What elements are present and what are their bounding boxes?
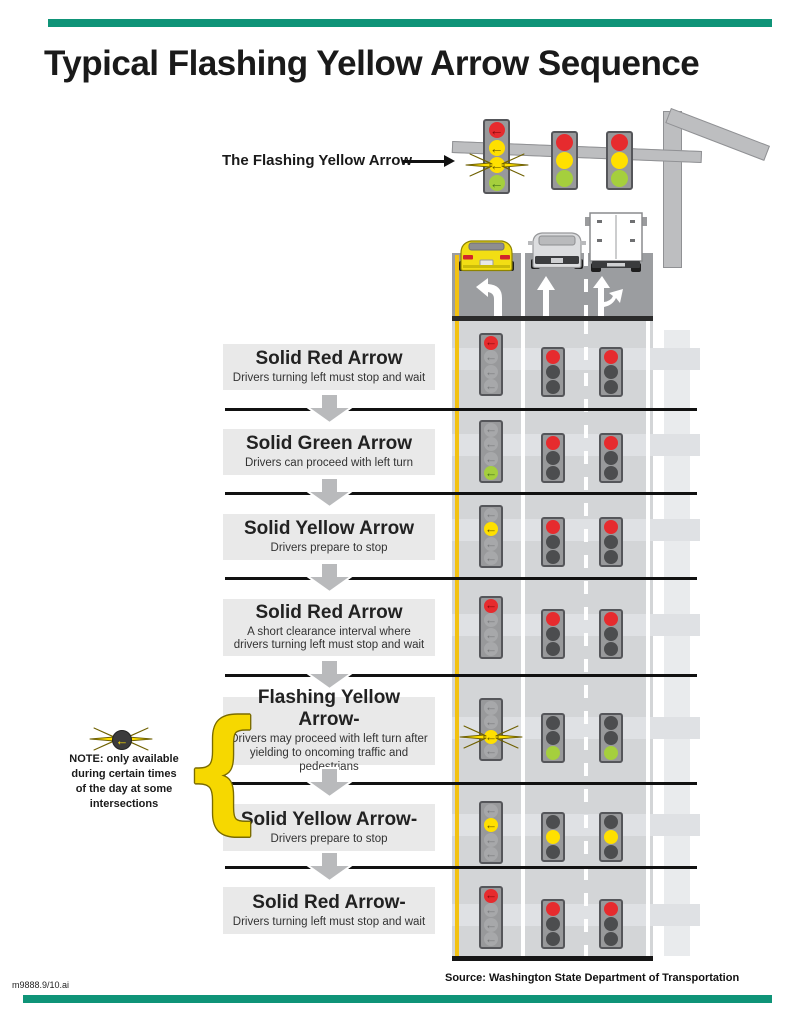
red-lamp bbox=[546, 902, 560, 916]
phase-divider bbox=[225, 492, 697, 495]
flashing-yellow-arrow-lamp-off bbox=[484, 918, 498, 932]
red-lamp bbox=[604, 902, 618, 916]
green-lamp-off bbox=[546, 550, 560, 564]
yellow-lamp-off bbox=[546, 451, 560, 465]
phase-label-solid-red-arrow-3: Solid Red Arrow- Drivers turning left mu… bbox=[223, 887, 435, 934]
flashing-yellow-arrow-lamp-off bbox=[484, 628, 498, 642]
red-lamp-off bbox=[604, 716, 618, 730]
flashing-yellow-arrow-icon: ← bbox=[112, 730, 132, 750]
left-turn-signal bbox=[479, 698, 503, 761]
phase-divider bbox=[225, 782, 697, 785]
lane-line-solid bbox=[646, 321, 650, 956]
red-arrow-lamp bbox=[489, 122, 505, 138]
next-phase-arrow-icon bbox=[306, 477, 353, 508]
signal-pole bbox=[663, 111, 682, 268]
left-turn-signal bbox=[479, 333, 503, 396]
red-arrow-lamp-off bbox=[484, 701, 498, 715]
next-phase-arrow-icon bbox=[306, 767, 353, 798]
yellow-lamp-off bbox=[546, 627, 560, 641]
green-arrow-lamp-off bbox=[484, 932, 498, 946]
yellow-lamp bbox=[604, 830, 618, 844]
through-signal bbox=[599, 713, 623, 763]
green-arrow-lamp-off bbox=[484, 642, 498, 656]
box-truck bbox=[585, 211, 647, 273]
flashing-yellow-arrow-lamp bbox=[484, 730, 498, 744]
through-signal bbox=[541, 713, 565, 763]
phase-desc: Drivers prepare to stop bbox=[229, 542, 429, 556]
red-lamp bbox=[604, 612, 618, 626]
left-turn-signal bbox=[479, 505, 503, 568]
phase-title: Solid Yellow Arrow bbox=[229, 518, 429, 540]
green-lamp bbox=[611, 170, 628, 187]
red-lamp bbox=[546, 520, 560, 534]
note-text: NOTE: only available during certain time… bbox=[68, 752, 180, 811]
yellow-arrow-lamp-off bbox=[484, 903, 498, 917]
red-arrow-lamp bbox=[484, 336, 498, 350]
yellow-lamp-off bbox=[604, 365, 618, 379]
yellow-arrow-lamp-off bbox=[484, 437, 498, 451]
next-phase-arrow-icon bbox=[306, 851, 353, 882]
left-turn-signal bbox=[479, 801, 503, 864]
yellow-arrow-lamp bbox=[484, 522, 498, 536]
phase-label-solid-green-arrow: Solid Green Arrow Drivers can proceed wi… bbox=[223, 429, 435, 475]
red-arrow-lamp bbox=[484, 889, 498, 903]
red-lamp bbox=[546, 350, 560, 364]
green-lamp-off bbox=[604, 642, 618, 656]
phase-label-solid-yellow-arrow: Solid Yellow Arrow Drivers prepare to st… bbox=[223, 514, 435, 560]
top-accent-bar bbox=[48, 19, 772, 27]
yellow-arrow-lamp-off bbox=[484, 715, 498, 729]
green-lamp-off bbox=[604, 550, 618, 564]
yellow-lamp-off bbox=[604, 535, 618, 549]
straight-arrow-marking bbox=[536, 276, 556, 318]
red-lamp bbox=[611, 134, 628, 151]
green-lamp bbox=[556, 170, 573, 187]
flashing-yellow-arrow-lamp bbox=[489, 157, 505, 173]
yellow-lamp-off bbox=[604, 731, 618, 745]
left-turn-signal bbox=[479, 420, 503, 483]
red-lamp-off bbox=[604, 815, 618, 829]
phase-title: Solid Red Arrow bbox=[229, 348, 429, 370]
through-signal bbox=[599, 517, 623, 567]
red-arrow-lamp-off bbox=[484, 508, 498, 522]
green-arrow-lamp-off bbox=[484, 379, 498, 393]
green-lamp-off bbox=[546, 845, 560, 859]
yellow-lamp-off bbox=[546, 917, 560, 931]
green-lamp-off bbox=[546, 466, 560, 480]
phase-desc: Drivers can proceed with left turn bbox=[229, 457, 429, 471]
green-lamp-off bbox=[604, 845, 618, 859]
phase-divider bbox=[225, 577, 697, 580]
green-lamp-off bbox=[546, 642, 560, 656]
next-phase-arrow-icon bbox=[306, 393, 353, 424]
red-arrow-lamp-off bbox=[484, 423, 498, 437]
green-arrow-lamp bbox=[484, 466, 498, 480]
through-signal bbox=[541, 899, 565, 949]
next-phase-arrow-icon bbox=[306, 659, 353, 690]
through-signal bbox=[541, 517, 565, 567]
left-turn-signal bbox=[479, 886, 503, 949]
red-lamp-off bbox=[546, 815, 560, 829]
phase-label-solid-red-arrow: Solid Red Arrow Drivers turning left mus… bbox=[223, 344, 435, 390]
red-lamp bbox=[546, 436, 560, 450]
lane-line-solid bbox=[521, 253, 525, 316]
red-lamp bbox=[546, 612, 560, 626]
green-lamp-off bbox=[604, 932, 618, 946]
file-id: m9888.9/10.ai bbox=[12, 980, 69, 990]
page-title: Typical Flashing Yellow Arrow Sequence bbox=[44, 44, 764, 84]
green-lamp-off bbox=[546, 932, 560, 946]
red-lamp bbox=[604, 350, 618, 364]
yellow-lamp bbox=[556, 152, 573, 169]
yellow-arrow-lamp bbox=[489, 140, 505, 156]
through-signal bbox=[541, 433, 565, 483]
lane-line-dashed bbox=[584, 321, 588, 956]
legend-three-section-signal bbox=[606, 131, 633, 190]
green-lamp bbox=[546, 746, 560, 760]
road-end-bar bbox=[452, 956, 653, 961]
yellow-arrow-lamp-off bbox=[484, 613, 498, 627]
through-signal bbox=[541, 609, 565, 659]
phase-divider bbox=[225, 408, 697, 411]
through-signal bbox=[599, 899, 623, 949]
red-lamp bbox=[604, 436, 618, 450]
left-turn-arrow-marking bbox=[474, 276, 510, 318]
phase-desc: Drivers turning left must stop and wait bbox=[229, 372, 429, 386]
phase-desc: A short clearance interval where drivers… bbox=[229, 626, 429, 654]
yellow-arrow-lamp-off bbox=[484, 350, 498, 364]
red-arrow-lamp bbox=[484, 599, 498, 613]
green-arrow-lamp-off bbox=[484, 744, 498, 758]
phase-title: Solid Green Arrow bbox=[229, 433, 429, 455]
through-signal bbox=[599, 347, 623, 397]
through-signal bbox=[541, 812, 565, 862]
yellow-lamp-off bbox=[546, 365, 560, 379]
left-turn-signal bbox=[479, 596, 503, 659]
green-arrow-lamp bbox=[489, 175, 505, 191]
phase-title: Solid Red Arrow- bbox=[229, 892, 429, 914]
pointer-arrow-icon bbox=[444, 155, 455, 167]
phase-label-solid-red-arrow-clearance: Solid Red Arrow A short clearance interv… bbox=[223, 599, 435, 656]
yellow-edge-line bbox=[455, 255, 459, 956]
yellow-car bbox=[454, 236, 519, 272]
through-signal bbox=[599, 609, 623, 659]
yellow-lamp-off bbox=[604, 451, 618, 465]
yellow-lamp-off bbox=[604, 627, 618, 641]
flashing-yellow-arrow-lamp-off bbox=[484, 365, 498, 379]
red-lamp-off bbox=[546, 716, 560, 730]
green-arrow-lamp-off bbox=[484, 551, 498, 565]
legend-four-section-signal bbox=[483, 119, 510, 194]
stop-bar bbox=[452, 316, 653, 321]
cross-street-strip bbox=[664, 330, 690, 956]
legend-three-section-signal bbox=[551, 131, 578, 190]
through-signal bbox=[599, 812, 623, 862]
green-lamp-off bbox=[546, 380, 560, 394]
red-lamp bbox=[556, 134, 573, 151]
yellow-lamp-off bbox=[546, 535, 560, 549]
bottom-accent-bar bbox=[23, 995, 772, 1003]
note-brace: { bbox=[180, 682, 221, 858]
phase-desc: Drivers turning left must stop and wait bbox=[229, 916, 429, 930]
yellow-lamp-off bbox=[604, 917, 618, 931]
green-arrow-lamp-off bbox=[484, 847, 498, 861]
yellow-lamp bbox=[611, 152, 628, 169]
through-signal bbox=[541, 347, 565, 397]
phase-divider bbox=[225, 674, 697, 677]
flashing-yellow-arrow-lamp-off bbox=[484, 452, 498, 466]
flashing-yellow-arrow-lamp-off bbox=[484, 537, 498, 551]
phase-divider bbox=[225, 866, 697, 869]
through-signal bbox=[599, 433, 623, 483]
yellow-lamp-off bbox=[546, 731, 560, 745]
flashing-yellow-arrow-label: The Flashing Yellow Arrow bbox=[222, 152, 412, 169]
phase-title: Solid Red Arrow bbox=[229, 602, 429, 624]
yellow-lamp bbox=[546, 830, 560, 844]
flashing-yellow-arrow-lamp-off bbox=[484, 833, 498, 847]
straight-or-right-arrow-marking bbox=[592, 276, 626, 318]
red-arrow-lamp-off bbox=[484, 804, 498, 818]
silver-suv bbox=[527, 229, 587, 270]
green-lamp bbox=[604, 746, 618, 760]
pointer-line bbox=[402, 160, 444, 163]
red-lamp bbox=[604, 520, 618, 534]
lane-line-solid bbox=[521, 321, 525, 956]
green-lamp-off bbox=[604, 380, 618, 394]
source-credit: Source: Washington State Department of T… bbox=[445, 972, 739, 984]
green-lamp-off bbox=[604, 466, 618, 480]
yellow-arrow-lamp bbox=[484, 818, 498, 832]
next-phase-arrow-icon bbox=[306, 562, 353, 593]
